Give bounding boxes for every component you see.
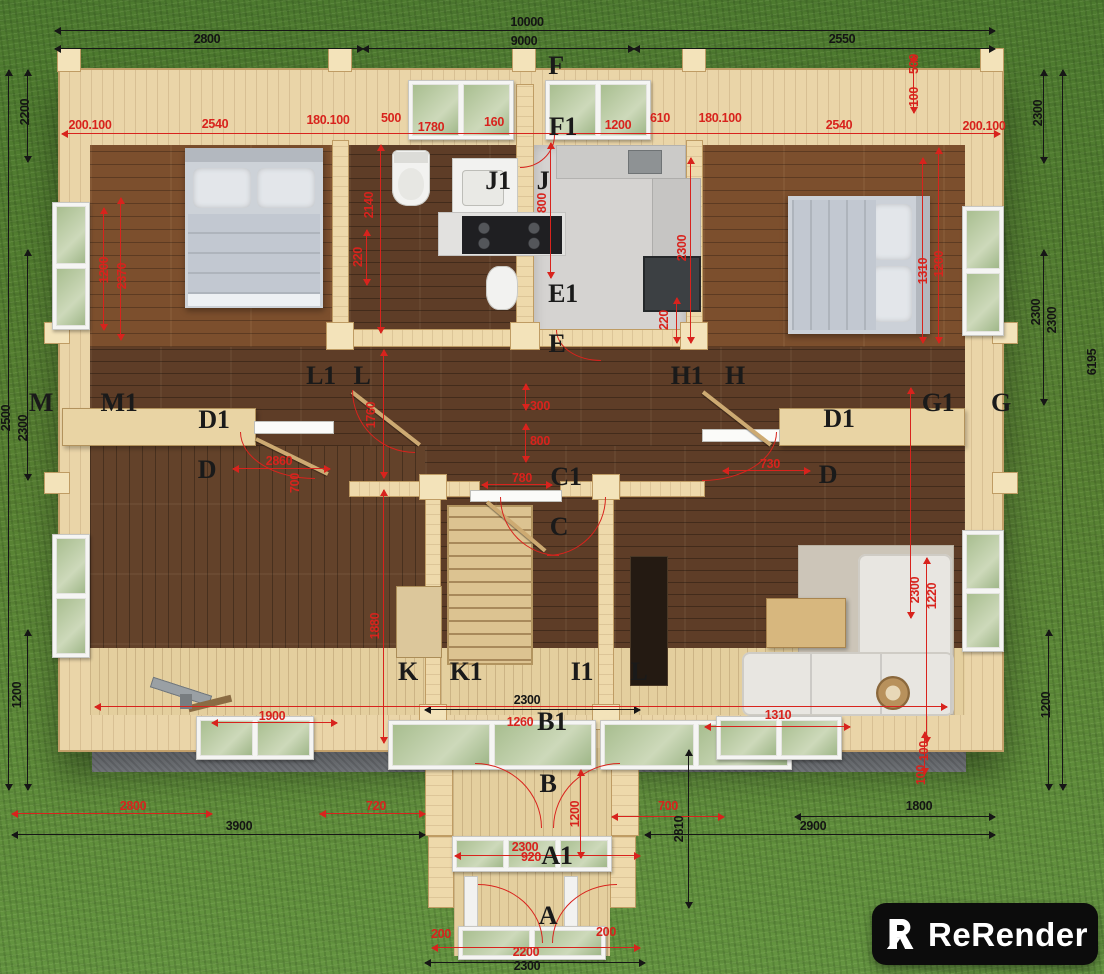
dim-label: 1200 <box>933 251 946 278</box>
dim-label: 500 <box>908 54 921 74</box>
dimension-line <box>634 48 995 49</box>
dimension-line <box>383 350 384 478</box>
dimension-line <box>363 48 634 49</box>
dim-label: 300 <box>530 400 550 413</box>
dim-label: 2300 <box>1032 100 1045 127</box>
dim-label: 1880 <box>369 613 382 640</box>
section-label: M1 <box>101 390 138 416</box>
dim-label: 200 <box>431 928 451 941</box>
dim-label: 1220 <box>926 583 939 610</box>
log-end <box>44 472 70 494</box>
section-label: A <box>539 903 557 929</box>
dim-label: 730 <box>760 458 780 471</box>
dim-label: 1200 <box>605 119 632 132</box>
dimension-line <box>550 143 551 278</box>
section-label: L <box>353 363 370 389</box>
dim-label: 1200 <box>1040 692 1053 719</box>
section-label: G1 <box>922 390 955 416</box>
dim-label: 10000 <box>510 16 543 29</box>
dim-label: 2810 <box>673 816 686 843</box>
dim-label: 1900 <box>259 710 286 723</box>
dim-label: 6195 <box>1086 349 1099 376</box>
section-label: H1 <box>671 363 704 389</box>
dim-label: 2200 <box>19 99 32 126</box>
dim-label: 2300 <box>909 577 922 604</box>
section-label: M <box>29 390 53 416</box>
log-cross <box>510 322 540 350</box>
dim-label: 1260 <box>507 716 534 729</box>
section-label: A1 <box>541 843 572 869</box>
section-label: D <box>198 457 216 483</box>
dim-label: 1200 <box>569 801 582 828</box>
dim-label: 1200 <box>98 257 111 284</box>
dim-label: 3900 <box>226 820 253 833</box>
section-label: G <box>991 390 1011 416</box>
section-label: J <box>537 168 550 194</box>
dim-label: 160 <box>484 116 504 129</box>
dimension-line <box>27 250 28 480</box>
dim-label: 2800 <box>194 33 221 46</box>
section-label: L1 <box>306 363 336 389</box>
section-label: D1 <box>823 406 854 432</box>
dim-label: 180.100 <box>306 114 349 127</box>
dim-label: 1310 <box>765 709 792 722</box>
dim-label: 200.100 <box>68 119 111 132</box>
log-end <box>682 48 706 72</box>
dim-label: 800 <box>530 435 550 448</box>
section-label: I1 <box>571 659 594 685</box>
dim-label: 100 <box>908 87 921 107</box>
section-label: H <box>725 363 745 389</box>
dimension-line <box>922 158 923 343</box>
window-bottom-right <box>716 716 842 760</box>
floor-plan-scene: 10000280090002550200.1002540180.10050017… <box>0 0 1104 974</box>
window-left-upper <box>52 202 90 330</box>
section-label: K <box>398 659 418 685</box>
section-label: F <box>548 53 564 79</box>
dimension-line <box>1062 70 1063 790</box>
window-right-lower <box>962 530 1004 652</box>
dim-label: 2300 <box>676 235 689 262</box>
section-label: D <box>819 462 837 488</box>
dim-label: 2300 <box>17 415 30 442</box>
dim-label: 2540 <box>202 118 229 131</box>
dimension-line <box>27 630 28 790</box>
dimension-line <box>645 834 995 835</box>
window-right-upper <box>962 206 1004 336</box>
dim-label: 700 <box>289 473 302 493</box>
dim-label: 2900 <box>800 820 827 833</box>
dimension-line <box>12 813 212 814</box>
dim-label: 720 <box>366 800 386 813</box>
dimension-line <box>62 133 1000 134</box>
dim-label: 1760 <box>365 402 378 429</box>
dim-label: 2370 <box>116 263 129 290</box>
dimension-line <box>690 158 691 343</box>
section-label: E <box>548 331 565 357</box>
dim-label: 180.100 <box>698 112 741 125</box>
dim-label: 1310 <box>917 258 930 285</box>
log-cross <box>680 322 708 350</box>
dimension-line <box>525 384 526 410</box>
dimension-line <box>612 816 724 817</box>
dimension-line <box>383 490 384 743</box>
dim-label: 610 <box>650 112 670 125</box>
section-label: K1 <box>450 659 483 685</box>
dim-label: 2860 <box>266 455 293 468</box>
dim-label: 100 <box>918 741 931 761</box>
rerender-watermark: ReRender <box>872 903 1098 965</box>
dimension-line <box>55 48 363 49</box>
dimension-line <box>233 468 330 469</box>
section-label: B1 <box>537 709 567 735</box>
dimension-line <box>795 816 995 817</box>
dim-label: 2300 <box>514 960 541 973</box>
log-end <box>328 48 352 72</box>
dim-label: 1780 <box>418 121 445 134</box>
section-label: L <box>630 659 647 685</box>
dim-label: 9000 <box>511 35 538 48</box>
dim-label: 100 <box>915 765 928 785</box>
dimension-line <box>705 726 850 727</box>
dim-label: 2200 <box>513 946 540 959</box>
dimension-line <box>380 145 381 333</box>
dim-label: 780 <box>512 472 532 485</box>
log-cross <box>419 474 447 500</box>
dim-label: 2800 <box>120 800 147 813</box>
dim-label: 2540 <box>826 119 853 132</box>
dim-label: 2140 <box>363 192 376 219</box>
dim-label: 2300 <box>1046 307 1059 334</box>
dim-label: 1200 <box>11 682 24 709</box>
dim-label: 2300 <box>1030 299 1043 326</box>
dimension-line <box>938 148 939 343</box>
section-label: J1 <box>485 168 510 194</box>
dim-label: 700 <box>658 800 678 813</box>
dim-label: 200.100 <box>962 120 1005 133</box>
dim-label: 800 <box>536 193 549 213</box>
log-end <box>512 48 536 72</box>
log-cross <box>326 322 354 350</box>
dimension-line <box>12 834 425 835</box>
dimension-line <box>366 230 367 285</box>
rerender-brand-text: ReRender <box>928 918 1088 951</box>
dimension-line <box>320 813 425 814</box>
dimension-line <box>525 424 526 462</box>
section-label: E1 <box>548 281 578 307</box>
dim-label: 1800 <box>906 800 933 813</box>
section-label: C1 <box>550 464 581 490</box>
window-left-lower <box>52 534 90 658</box>
dimension-line <box>688 750 689 908</box>
dim-label: 920 <box>521 851 541 864</box>
dim-label: 220 <box>352 247 365 267</box>
dim-label: 2500 <box>0 405 12 432</box>
log-end <box>992 472 1018 494</box>
section-label: D1 <box>198 407 229 433</box>
section-label: B <box>539 771 556 797</box>
dim-label: 2550 <box>829 33 856 46</box>
dimension-line <box>425 709 640 710</box>
section-label: C <box>550 514 568 540</box>
dimension-line <box>676 298 677 343</box>
dim-label: 220 <box>658 310 671 330</box>
dim-label: 200 <box>596 926 616 939</box>
dim-label: 2300 <box>514 694 541 707</box>
dim-label: 500 <box>381 112 401 125</box>
section-label: F1 <box>549 114 577 140</box>
rerender-logo-icon <box>882 916 918 952</box>
